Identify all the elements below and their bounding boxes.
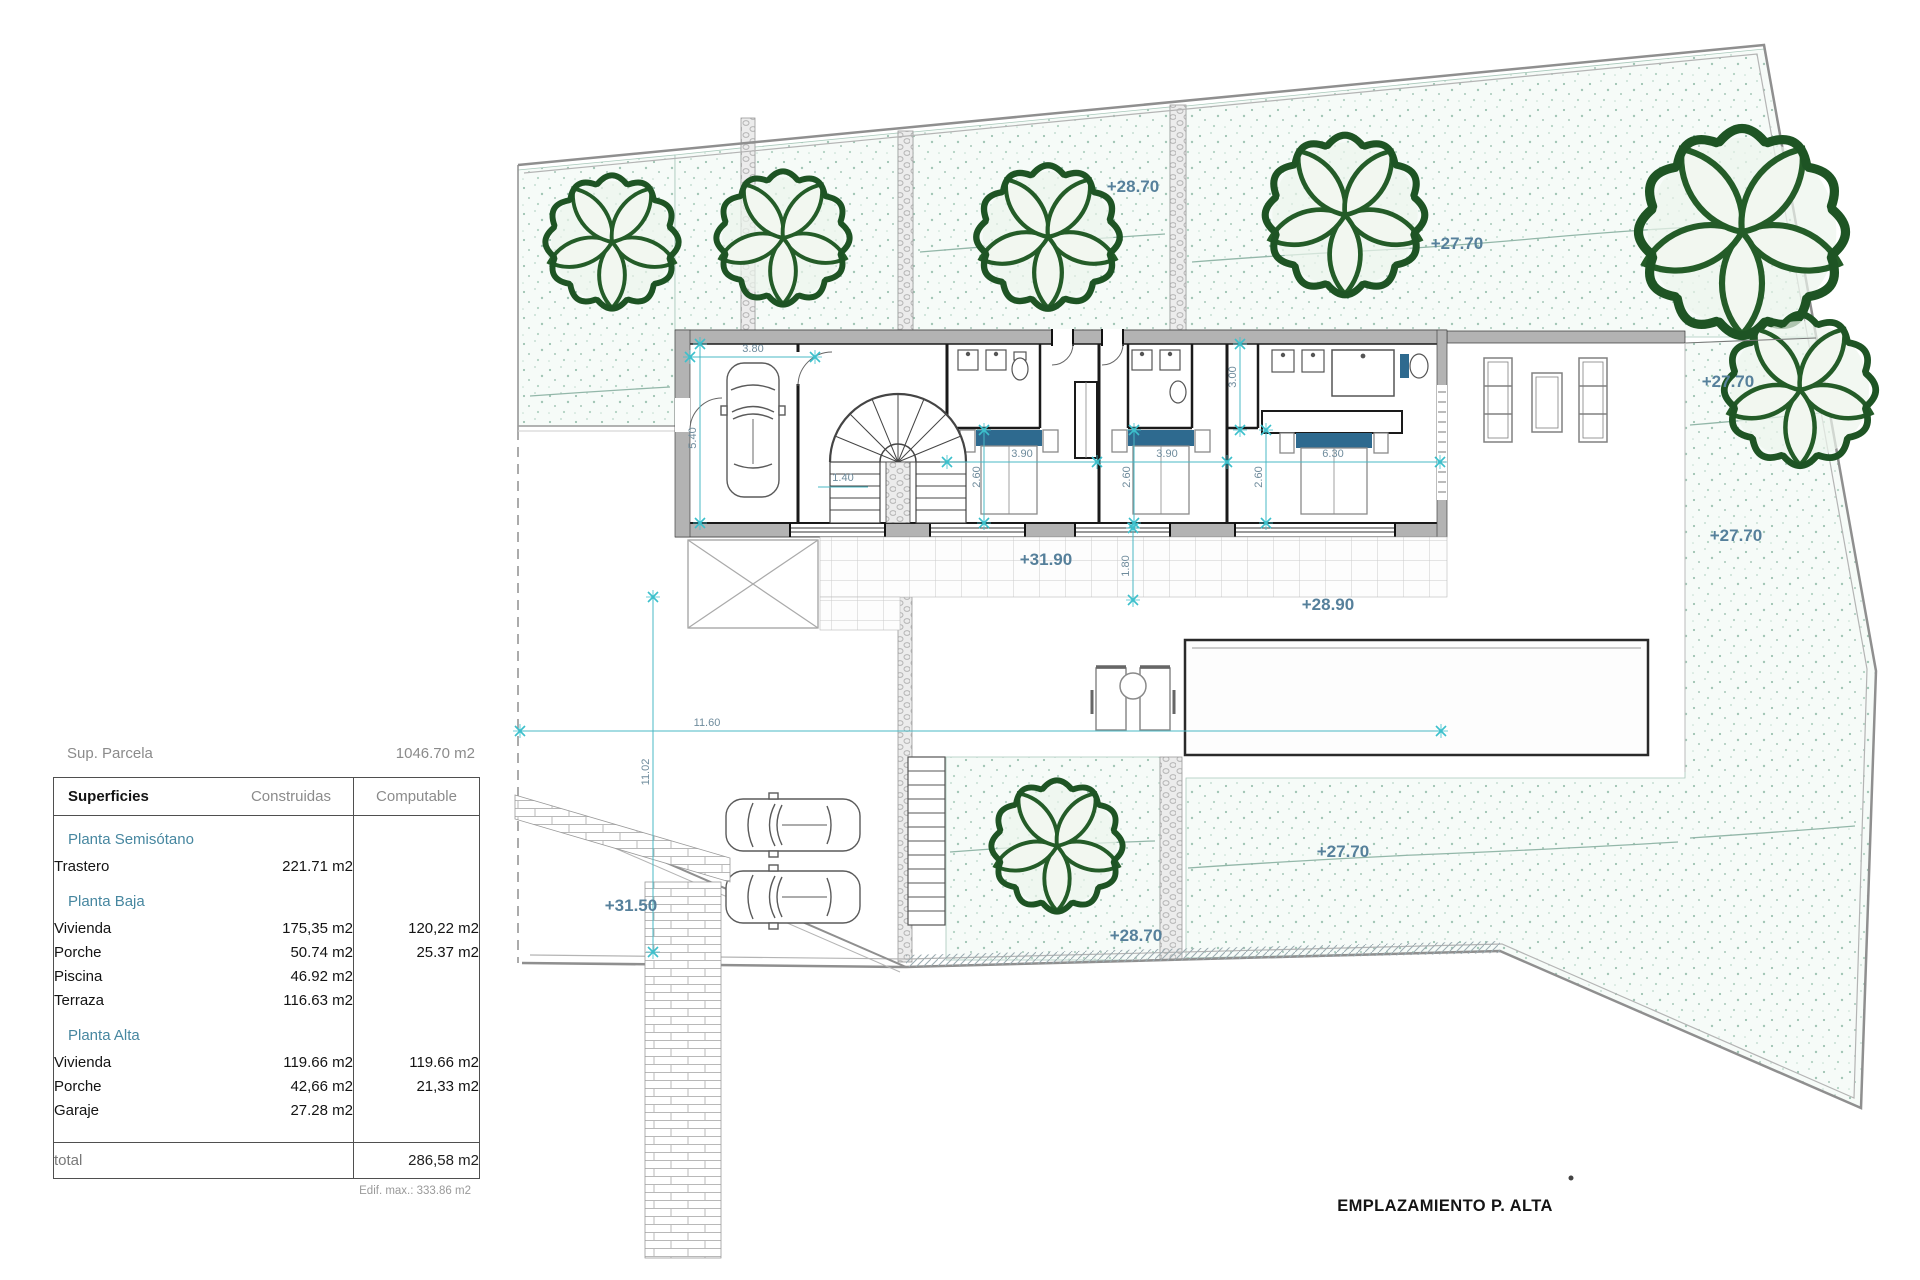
- dimension-label: 3.90: [1011, 448, 1032, 460]
- elevation-label: +27.70: [1431, 234, 1483, 253]
- row-name: Vivienda: [54, 1050, 204, 1074]
- elevation-label: +28.70: [1107, 177, 1159, 196]
- dimension-label: 2.60: [971, 466, 983, 487]
- parcel-area-value: 1046.70 m2: [396, 745, 475, 762]
- column-header-superficies: Superficies: [54, 778, 204, 816]
- bed-headboard: [1128, 430, 1194, 446]
- table-row: Terraza 116.63 m2: [54, 988, 480, 1012]
- dimension-label: 11.02: [640, 759, 652, 786]
- row-construidas: 116.63 m2: [204, 988, 354, 1012]
- staircase: [830, 394, 966, 523]
- table-row: Vivienda 175,35 m2 120,22 m2: [54, 916, 480, 940]
- bed-headboard: [1296, 433, 1372, 448]
- pool: [1185, 640, 1648, 755]
- elevation-label: +31.50: [605, 896, 657, 915]
- row-computable: [354, 988, 480, 1012]
- total-label: total: [54, 1143, 204, 1179]
- dimension-label: 1.80: [1120, 555, 1132, 576]
- elevation-label: +28.70: [1110, 926, 1162, 945]
- dimension-label: 3.90: [1156, 448, 1177, 460]
- total-row: total 286,58 m2: [54, 1143, 480, 1179]
- row-name: Trastero: [54, 854, 204, 878]
- window-strip: [1437, 385, 1447, 500]
- row-name: Terraza: [54, 988, 204, 1012]
- row-construidas: 175,35 m2: [204, 916, 354, 940]
- section-title: Planta Semisótano: [54, 816, 354, 855]
- section-title-row: Planta Baja: [54, 878, 480, 916]
- dimension-label: 3.80: [742, 343, 763, 355]
- dimension-label: 1.40: [832, 472, 853, 484]
- dimension-label: 5.40: [687, 427, 699, 448]
- row-computable: 120,22 m2: [354, 916, 480, 940]
- row-name: Porche: [54, 940, 204, 964]
- table-row: Piscina 46.92 m2: [54, 964, 480, 988]
- row-construidas: 221.71 m2: [204, 854, 354, 878]
- row-computable: 119.66 m2: [354, 1050, 480, 1074]
- row-construidas: 119.66 m2: [204, 1050, 354, 1074]
- dimension-label: 6.30: [1322, 448, 1343, 460]
- door-opening: [675, 398, 690, 432]
- dimension-label: 11.60: [694, 717, 721, 729]
- garage-car: [721, 363, 785, 497]
- section-title-row: Planta Semisótano: [54, 816, 480, 855]
- terrace-windows: [790, 523, 1395, 537]
- building: [675, 329, 1447, 537]
- table-header-row: Superficies Construidas Computable: [54, 778, 480, 816]
- parcel-area-row: Sup. Parcela 1046.70 m2: [53, 745, 479, 762]
- section-title: Planta Alta: [54, 1012, 354, 1050]
- desk: [1262, 411, 1402, 433]
- table-row: Garaje 27.28 m2: [54, 1098, 480, 1122]
- dimension-label: 3.00: [1227, 366, 1239, 387]
- row-name: Vivienda: [54, 916, 204, 940]
- row-computable: 21,33 m2: [354, 1074, 480, 1098]
- dimension-label: 2.60: [1253, 466, 1265, 487]
- total-value: 286,58 m2: [354, 1143, 480, 1179]
- section-title-row: Planta Alta: [54, 1012, 480, 1050]
- parcel-area-label: Sup. Parcela: [67, 745, 153, 762]
- row-name: Porche: [54, 1074, 204, 1098]
- areas-summary: Sup. Parcela 1046.70 m2 Superficies Cons…: [53, 745, 479, 1197]
- table-row: Vivienda 119.66 m2 119.66 m2: [54, 1050, 480, 1074]
- row-computable: [354, 1098, 480, 1122]
- survey-point: [1569, 1176, 1574, 1181]
- table-row: Porche 50.74 m2 25.37 m2: [54, 940, 480, 964]
- row-name: Piscina: [54, 964, 204, 988]
- table-row: Porche 42,66 m2 21,33 m2: [54, 1074, 480, 1098]
- table-row: Trastero 221.71 m2: [54, 854, 480, 878]
- site-plan-sheet: 3.80 5.40 1.40 3.90 3.90 6.30 2.60 2.60 …: [0, 0, 1920, 1280]
- row-construidas: 50.74 m2: [204, 940, 354, 964]
- elevation-label: +31.90: [1020, 550, 1072, 569]
- toilet: [1400, 354, 1409, 378]
- pool-loungers: [1092, 667, 1174, 730]
- row-construidas: 46.92 m2: [204, 964, 354, 988]
- parked-cars: [726, 793, 860, 929]
- row-computable: [354, 854, 480, 878]
- column-header-construidas: Construidas: [204, 778, 354, 816]
- row-name: Garaje: [54, 1098, 204, 1122]
- elevation-label: +27.70: [1702, 372, 1754, 391]
- spacer-row: [54, 1122, 480, 1143]
- elevation-label: +27.70: [1317, 842, 1369, 861]
- row-construidas: 42,66 m2: [204, 1074, 354, 1098]
- elevation-label: +28.90: [1302, 595, 1354, 614]
- edif-max-note: Edif. max.: 333.86 m2: [53, 1185, 479, 1197]
- brick-retaining-wall: [515, 795, 730, 1258]
- section-title: Planta Baja: [54, 878, 354, 916]
- plan-caption: EMPLAZAMIENTO P. ALTA: [1295, 1197, 1595, 1216]
- row-computable: 25.37 m2: [354, 940, 480, 964]
- round-table: [1120, 673, 1146, 699]
- garage-ramp: [688, 540, 818, 628]
- garden-stairs: [908, 757, 945, 925]
- row-construidas: 27.28 m2: [204, 1098, 354, 1122]
- dimension-label: 2.60: [1121, 466, 1133, 487]
- column-header-computable: Computable: [354, 778, 480, 816]
- surfaces-table: Superficies Construidas Computable Plant…: [53, 777, 480, 1179]
- elevation-label: +27.70: [1710, 526, 1762, 545]
- row-computable: [354, 964, 480, 988]
